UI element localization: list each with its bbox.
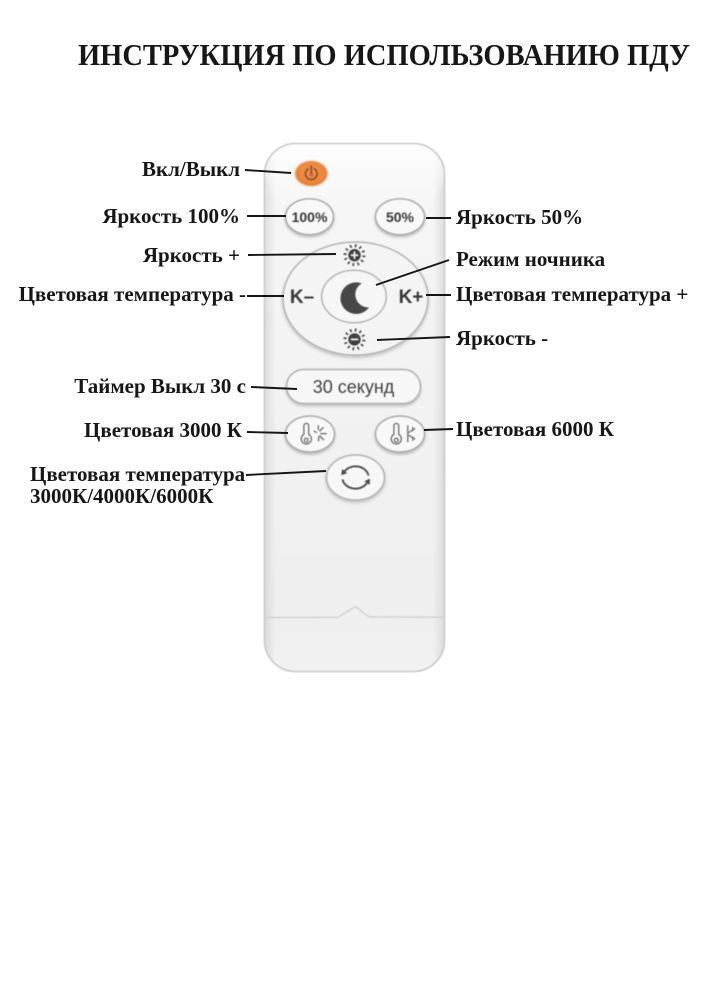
svg-text:Яркость 100%: Яркость 100% bbox=[102, 204, 240, 228]
svg-text:Цветовая температура -: Цветовая температура - bbox=[19, 282, 246, 306]
svg-text:K+: K+ bbox=[399, 287, 424, 308]
svg-text:Цветовая 6000 К: Цветовая 6000 К bbox=[456, 417, 615, 441]
svg-text:3000К/4000К/6000К: 3000К/4000К/6000К bbox=[30, 484, 214, 508]
svg-text:Яркость 50%: Яркость 50% bbox=[456, 205, 583, 229]
svg-text:Яркость -: Яркость - bbox=[456, 326, 548, 350]
svg-text:Цветовая температура +: Цветовая температура + bbox=[456, 282, 688, 306]
svg-text:50%: 50% bbox=[386, 209, 415, 225]
svg-text:Режим ночника: Режим ночника bbox=[456, 247, 606, 271]
svg-text:Вкл/Выкл: Вкл/Выкл bbox=[142, 157, 240, 181]
svg-text:Таймер Выкл 30 с: Таймер Выкл 30 с bbox=[74, 374, 246, 398]
svg-text:Яркость +: Яркость + bbox=[143, 243, 240, 267]
svg-text:Цветовая 3000 К: Цветовая 3000 К bbox=[84, 418, 243, 442]
svg-text:ИНСТРУКЦИЯ ПО ИСПОЛЬЗОВАНИЮ ПД: ИНСТРУКЦИЯ ПО ИСПОЛЬЗОВАНИЮ ПДУ bbox=[78, 37, 690, 72]
svg-text:30 секунд: 30 секунд bbox=[313, 377, 395, 397]
svg-text:Цветовая температура: Цветовая температура bbox=[30, 462, 246, 486]
svg-text:K–: K– bbox=[290, 287, 314, 308]
svg-text:100%: 100% bbox=[292, 209, 328, 225]
